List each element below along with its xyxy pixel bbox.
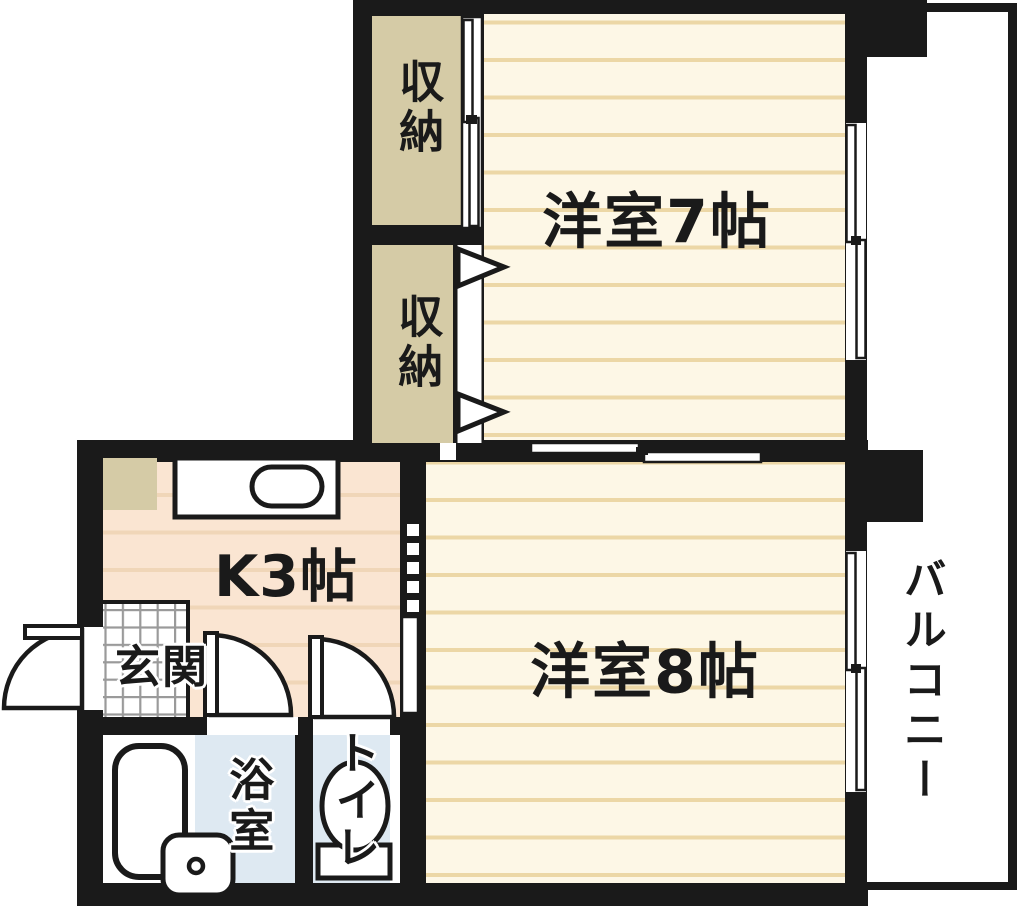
closet-top-label: 収納 [393,58,442,158]
wall-notch-top-right [863,0,927,57]
toilet-label: トイレ [329,730,378,871]
wall-jamb-notch [440,443,456,460]
kitchen-sliding-door-dash-1 [407,524,419,536]
wall-bath-toilet-divider [295,735,313,883]
kitchen-sliding-door-dash-3 [407,562,419,574]
sliding-door-latch [636,447,648,455]
kitchen-label: K3帖 [214,547,358,609]
washstand-drain-icon [189,859,203,873]
balcony-label: バルコニー [898,557,944,807]
window2-pane-b [857,668,866,790]
window2-latch [851,664,861,673]
closet-top-slider-pane-a [464,20,473,122]
entrance-door-leaf [25,626,82,638]
closet-top-slider-pane-b [470,118,479,226]
entrance-label: 玄関 [115,644,209,693]
closet-bottom-label: 収納 [392,293,441,393]
sliding-door-pane-a [531,443,639,453]
balcony-rail-right [1008,3,1017,890]
balcony-rail-top [927,3,1016,12]
balcony-rail-bottom [863,882,1017,890]
room8-label: 洋室8帖 [530,641,760,706]
entrance-step-edge-top [103,600,190,604]
closet-top-slider-latch [466,115,477,124]
bathroom-label: 浴室 [223,756,272,858]
toilet-door-leaf [310,637,322,717]
window1-pane-a [847,125,856,242]
kitchen-sliding-door-panel [402,617,418,713]
bathroom-doorway [207,717,298,735]
floorplan: 洋室7帖 洋室8帖 K3帖 収納 収納 玄関 浴室 トイレ バルコニー [0,0,1024,906]
kitchen-sink-icon [252,467,322,506]
kitchen-sliding-door-dash-5 [407,600,419,612]
kitchen-fixtures [103,458,338,517]
window2-pane-a [847,553,856,670]
kitchen-sliding-door-dash-2 [407,543,419,555]
refrigerator-space [103,458,157,510]
window1-pane-b [857,240,866,358]
sliding-door-pane-b [644,452,761,462]
room7-label: 洋室7帖 [542,191,772,256]
floorplan-drawing [0,0,1024,906]
kitchen-sliding-door-dash-4 [407,581,419,593]
window1-latch [851,236,861,245]
